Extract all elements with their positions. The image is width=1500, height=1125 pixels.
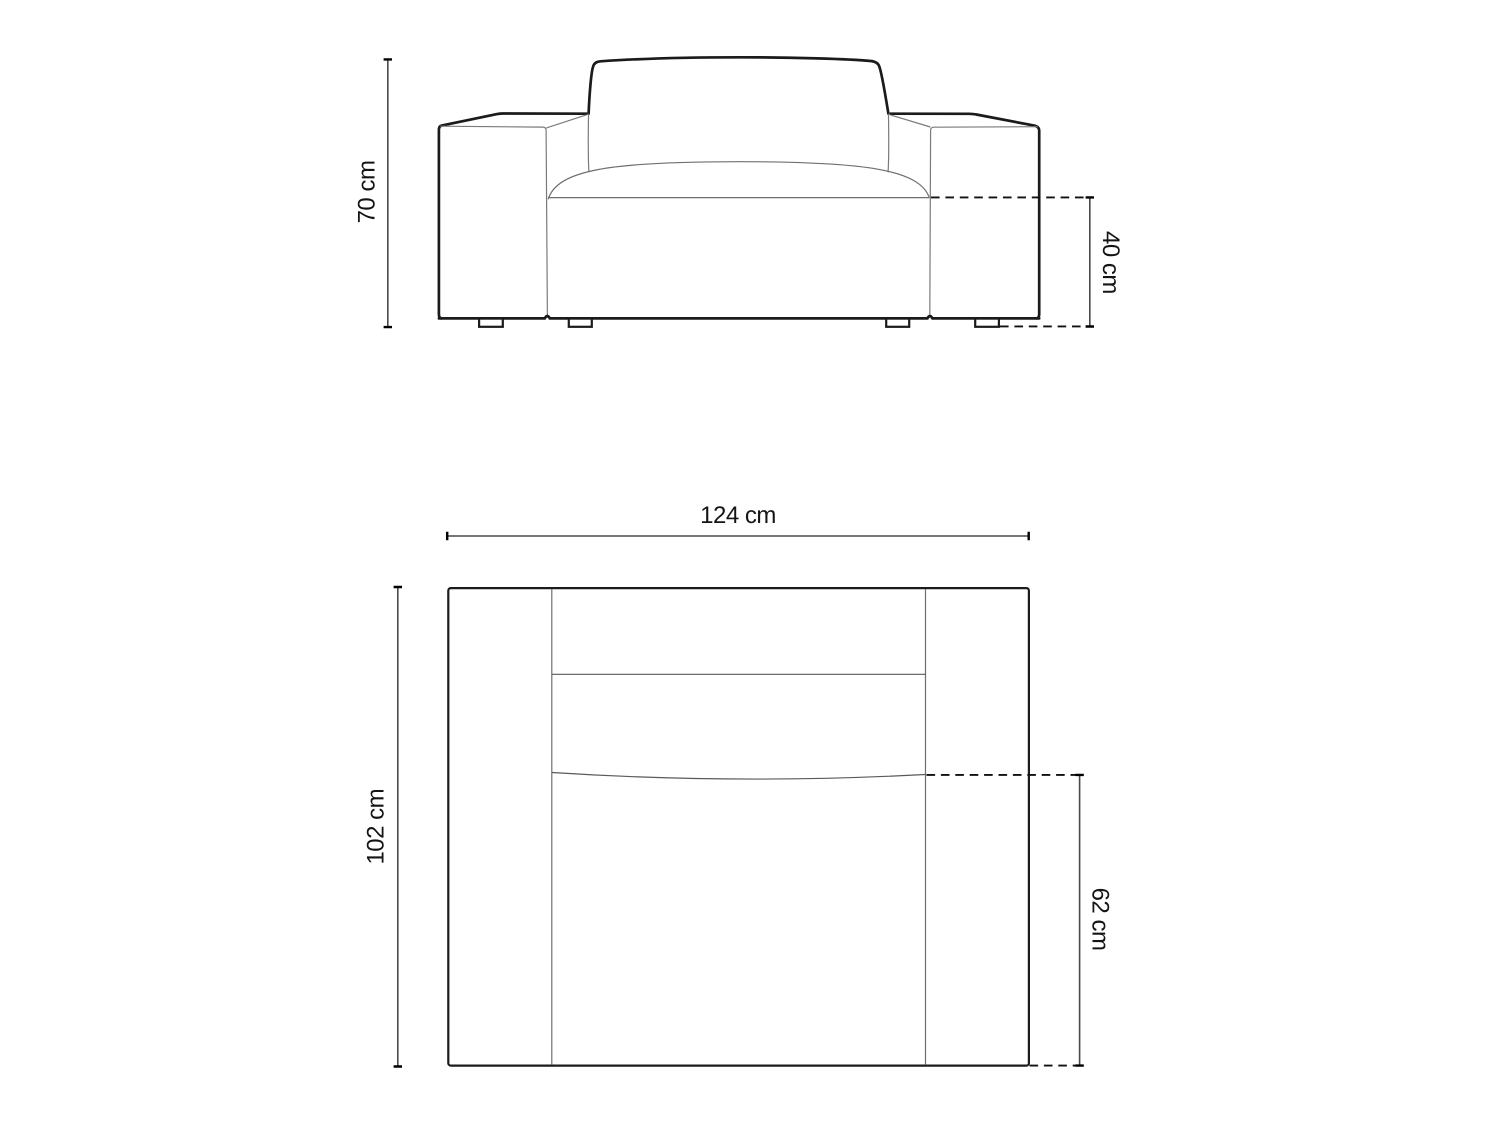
svg-text:102 cm: 102 cm <box>362 789 389 865</box>
svg-text:40 cm: 40 cm <box>1097 231 1124 294</box>
svg-text:124 cm: 124 cm <box>700 502 776 529</box>
svg-text:70 cm: 70 cm <box>354 161 381 224</box>
svg-text:62 cm: 62 cm <box>1087 888 1114 951</box>
